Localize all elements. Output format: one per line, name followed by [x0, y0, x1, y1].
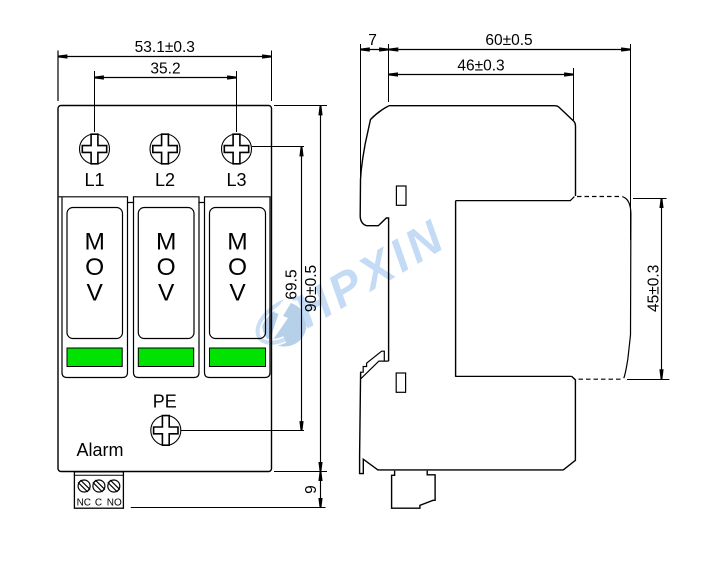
svg-text:60±0.5: 60±0.5	[485, 32, 532, 49]
svg-text:NC: NC	[77, 498, 91, 509]
svg-text:V: V	[87, 280, 104, 307]
svg-text:69.5: 69.5	[284, 269, 301, 299]
svg-text:NO: NO	[107, 498, 122, 509]
svg-text:35.2: 35.2	[150, 60, 180, 77]
svg-text:9: 9	[303, 485, 320, 494]
svg-text:M: M	[156, 229, 176, 256]
svg-text:O: O	[157, 254, 176, 281]
svg-text:PE: PE	[153, 392, 177, 412]
svg-text:O: O	[228, 254, 247, 281]
svg-text:53.1±0.3: 53.1±0.3	[135, 39, 195, 56]
svg-text:L1: L1	[84, 170, 104, 190]
svg-text:V: V	[229, 280, 246, 307]
svg-text:7: 7	[368, 32, 377, 49]
svg-text:90±0.5: 90±0.5	[303, 265, 320, 312]
svg-text:M: M	[227, 229, 247, 256]
svg-text:L3: L3	[226, 170, 246, 190]
svg-text:O: O	[85, 254, 104, 281]
svg-text:46±0.3: 46±0.3	[457, 58, 504, 75]
svg-text:V: V	[158, 280, 175, 307]
svg-text:M: M	[84, 229, 104, 256]
svg-text:45±0.3: 45±0.3	[646, 265, 663, 312]
svg-text:Alarm: Alarm	[77, 440, 124, 460]
svg-text:L2: L2	[155, 170, 175, 190]
svg-text:C: C	[95, 498, 102, 509]
